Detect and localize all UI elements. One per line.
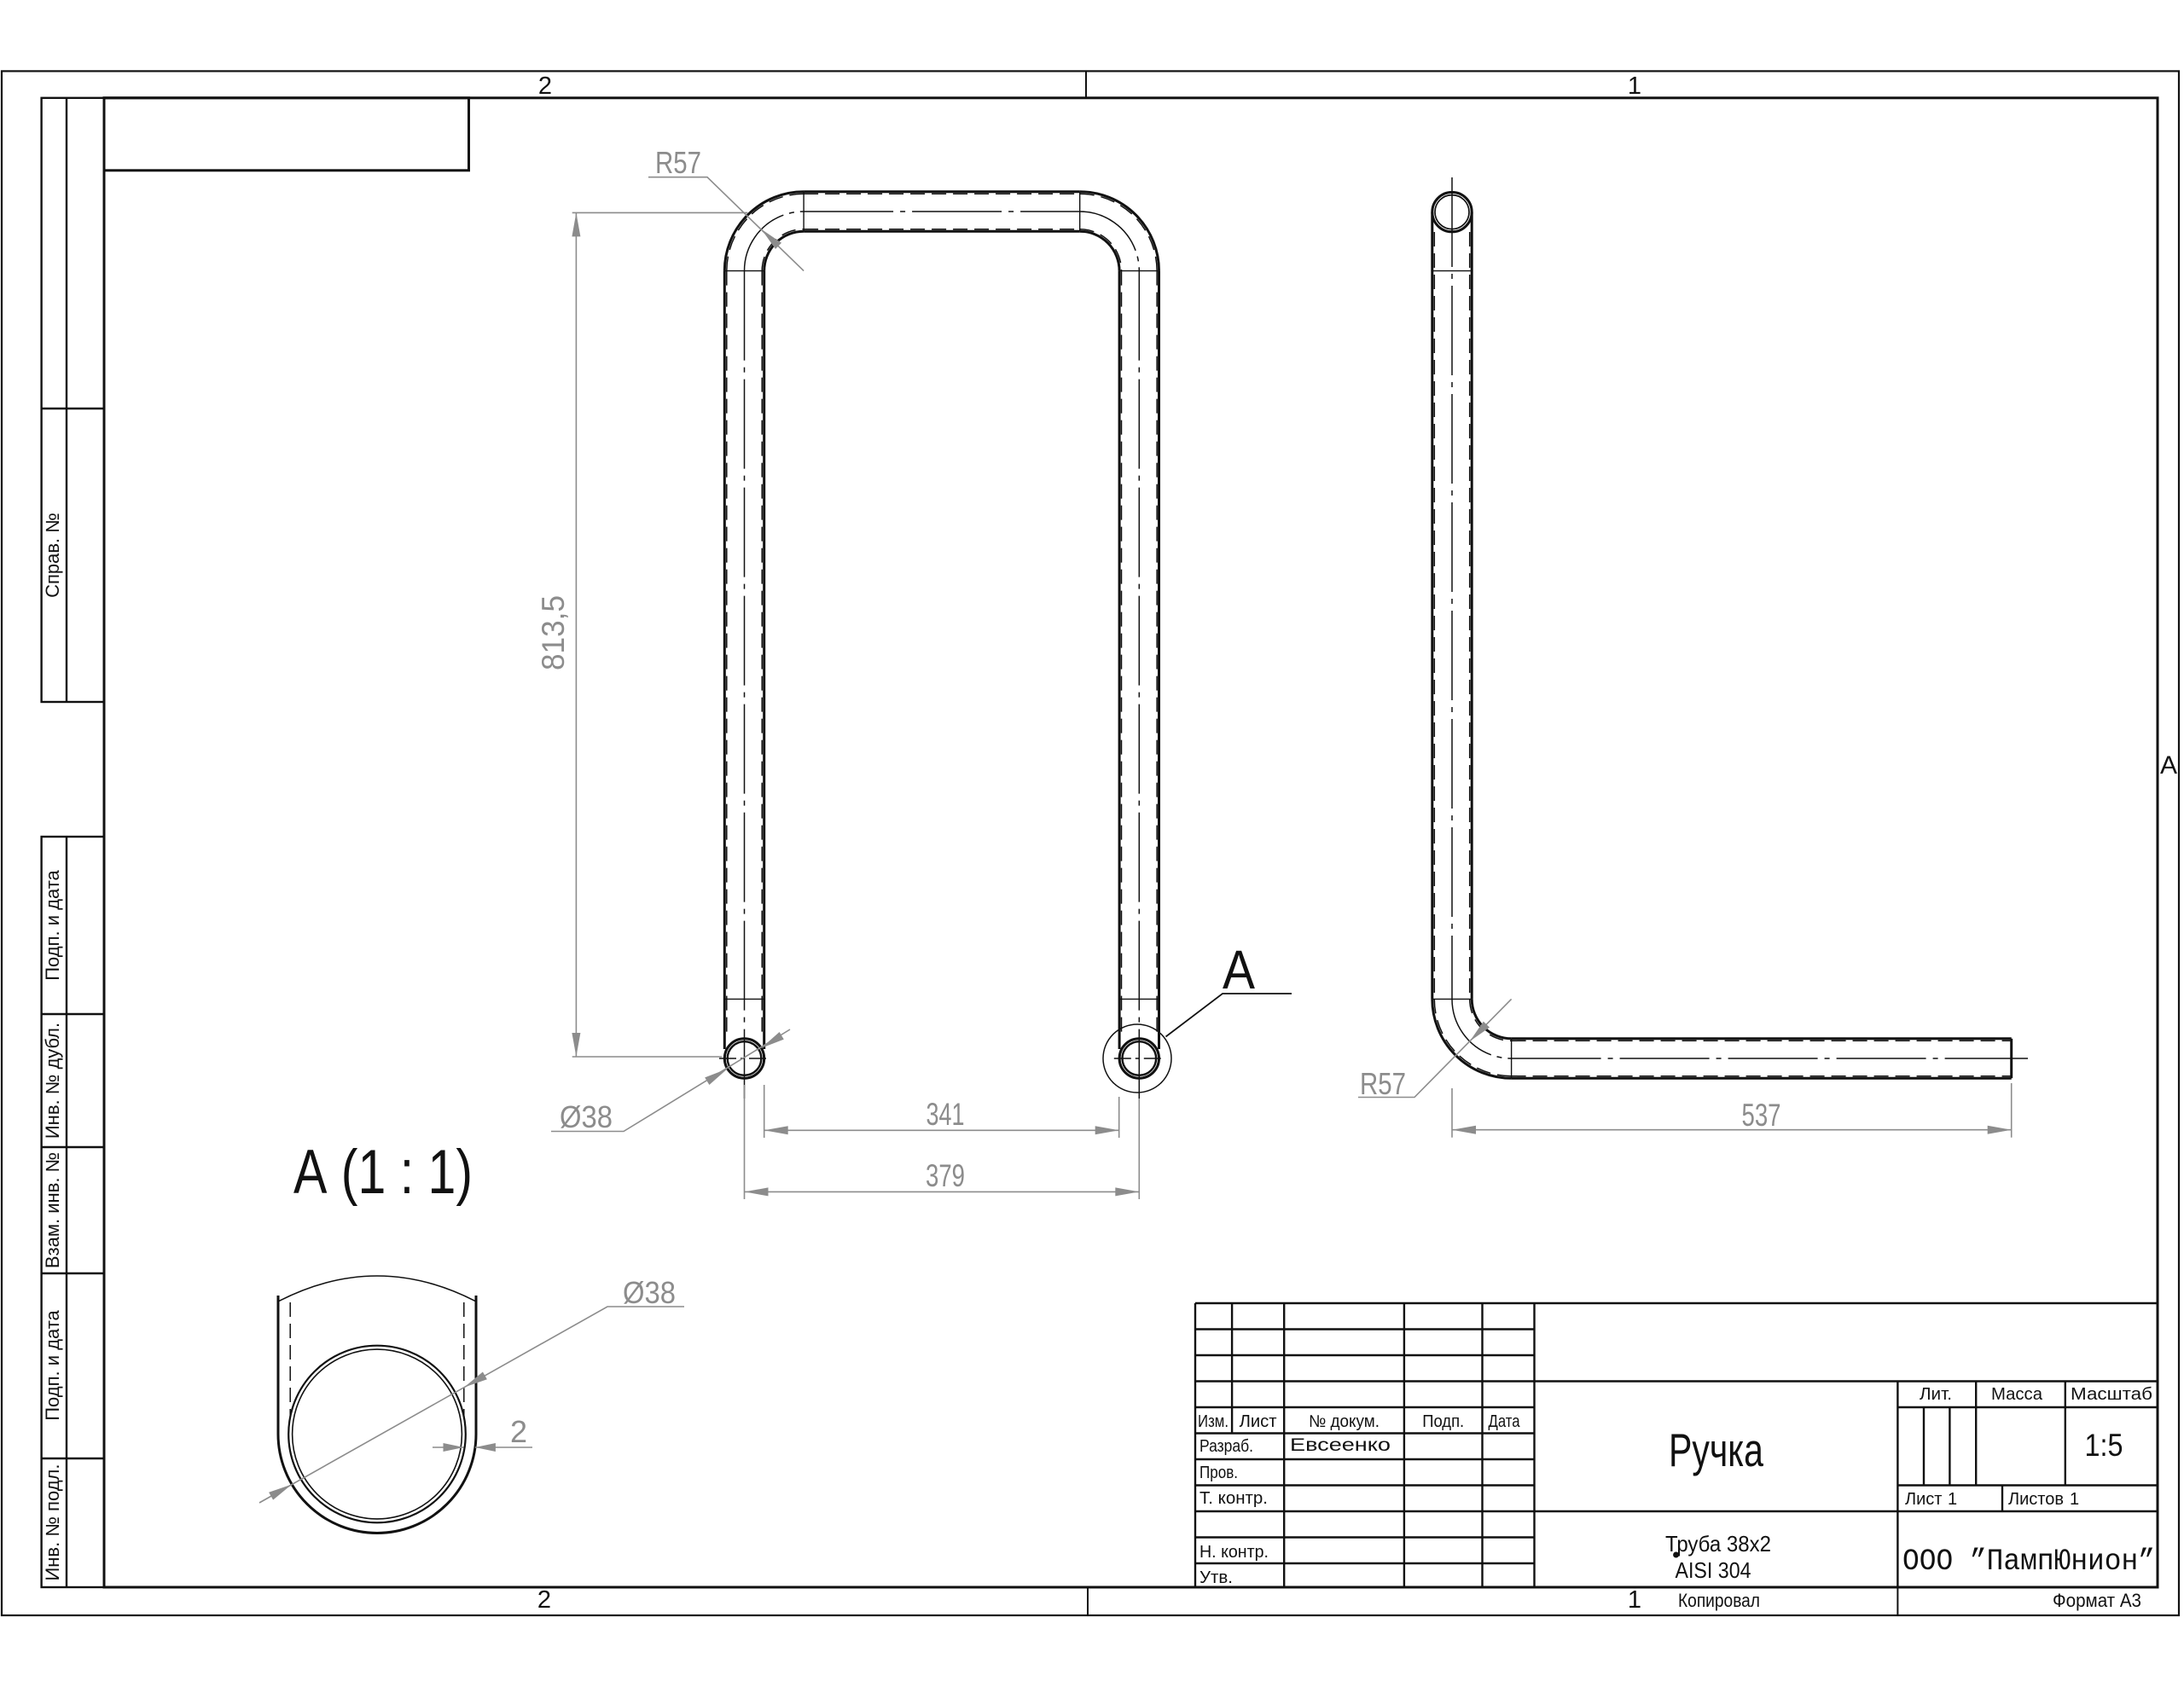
- svg-text:Разраб.: Разраб.: [1199, 1437, 1253, 1456]
- svg-text:341: 341: [926, 1097, 965, 1132]
- svg-text:Копировал: Копировал: [1678, 1590, 1760, 1611]
- svg-text:№ докум.: № докум.: [1309, 1412, 1380, 1431]
- svg-text:Справ. №: Справ. №: [42, 513, 63, 598]
- svg-text:Ø38: Ø38: [560, 1099, 613, 1134]
- svg-text:Ручка: Ручка: [1669, 1423, 1763, 1476]
- svg-text:R57: R57: [1360, 1066, 1406, 1101]
- svg-text:1: 1: [1628, 72, 1641, 100]
- svg-text:Дата: Дата: [1489, 1412, 1521, 1431]
- svg-text:Листов: Листов: [2008, 1490, 2064, 1509]
- svg-text:537: 537: [1742, 1098, 1781, 1133]
- svg-text:1: 1: [1948, 1490, 1957, 1509]
- svg-text:ООО ”ПампЮнион”: ООО ”ПампЮнион”: [1902, 1545, 2155, 1579]
- svg-text:Инв. № дубл.: Инв. № дубл.: [42, 1023, 63, 1139]
- svg-text:2: 2: [538, 72, 552, 100]
- svg-text:1:5: 1:5: [2085, 1428, 2123, 1463]
- svg-text:Н. контр.: Н. контр.: [1199, 1543, 1269, 1562]
- svg-text:813,5: 813,5: [536, 595, 571, 670]
- svg-text:Лист: Лист: [1905, 1490, 1942, 1509]
- svg-text:Лит.: Лит.: [1920, 1385, 1952, 1404]
- svg-text:1: 1: [2070, 1490, 2079, 1509]
- svg-text:Подп. и дата: Подп. и дата: [42, 869, 63, 980]
- svg-text:Инв. № подл.: Инв. № подл.: [42, 1464, 63, 1580]
- svg-text:Изм.: Изм.: [1198, 1412, 1228, 1431]
- svg-text:Утв.: Утв.: [1199, 1568, 1233, 1587]
- svg-text:Т. контр.: Т. контр.: [1199, 1489, 1268, 1508]
- svg-text:AISI 304: AISI 304: [1676, 1557, 1751, 1583]
- svg-text:Подп.: Подп.: [1422, 1412, 1464, 1431]
- svg-text:Масса: Масса: [1991, 1385, 2043, 1404]
- svg-text:А: А: [1223, 939, 1255, 1000]
- svg-text:Формат А3: Формат А3: [2053, 1590, 2141, 1611]
- svg-text:379: 379: [926, 1158, 965, 1193]
- svg-text:Труба 38х2: Труба 38х2: [1665, 1531, 1771, 1557]
- svg-text:Евсеенко: Евсеенко: [1290, 1435, 1391, 1455]
- svg-text:А: А: [2160, 751, 2177, 780]
- svg-text:Масштаб: Масштаб: [2071, 1385, 2152, 1404]
- svg-text:2: 2: [510, 1414, 527, 1449]
- svg-text:Лист: Лист: [1240, 1412, 1277, 1431]
- svg-text:Пров.: Пров.: [1199, 1464, 1238, 1482]
- svg-text:Ø38: Ø38: [623, 1275, 676, 1310]
- svg-text:Подп. и дата: Подп. и дата: [42, 1309, 63, 1420]
- svg-text:1: 1: [1628, 1586, 1641, 1614]
- svg-text:Взам. инв. №: Взам. инв. №: [42, 1152, 63, 1268]
- svg-text:R57: R57: [655, 145, 701, 180]
- svg-text:2: 2: [537, 1586, 551, 1614]
- svg-text:А (1 : 1): А (1 : 1): [293, 1138, 473, 1207]
